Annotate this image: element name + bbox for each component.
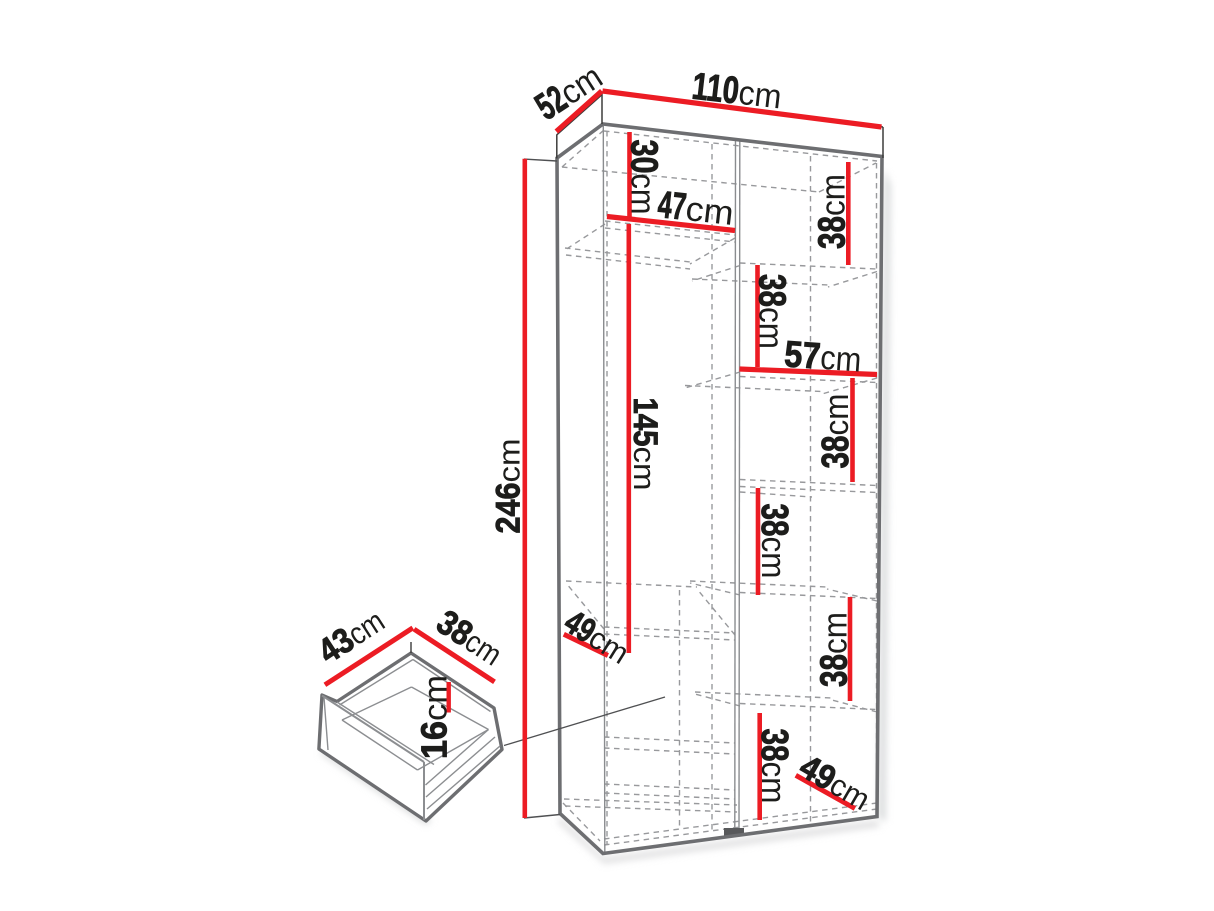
svg-text:16cm: 16cm <box>414 675 455 759</box>
svg-text:246cm: 246cm <box>490 439 528 534</box>
svg-text:57cm: 57cm <box>783 333 863 379</box>
svg-text:145cm: 145cm <box>626 398 664 491</box>
svg-text:38cm: 38cm <box>753 504 795 579</box>
svg-text:49cm: 49cm <box>793 748 877 818</box>
svg-text:110cm: 110cm <box>690 66 784 118</box>
svg-text:38cm: 38cm <box>751 274 793 349</box>
svg-text:38cm: 38cm <box>753 729 795 804</box>
svg-text:43cm: 43cm <box>311 601 391 672</box>
svg-text:38cm: 38cm <box>814 612 856 687</box>
svg-text:49cm: 49cm <box>558 603 637 672</box>
svg-text:38cm: 38cm <box>815 394 857 469</box>
svg-text:38cm: 38cm <box>812 174 854 249</box>
svg-text:47cm: 47cm <box>656 184 736 234</box>
